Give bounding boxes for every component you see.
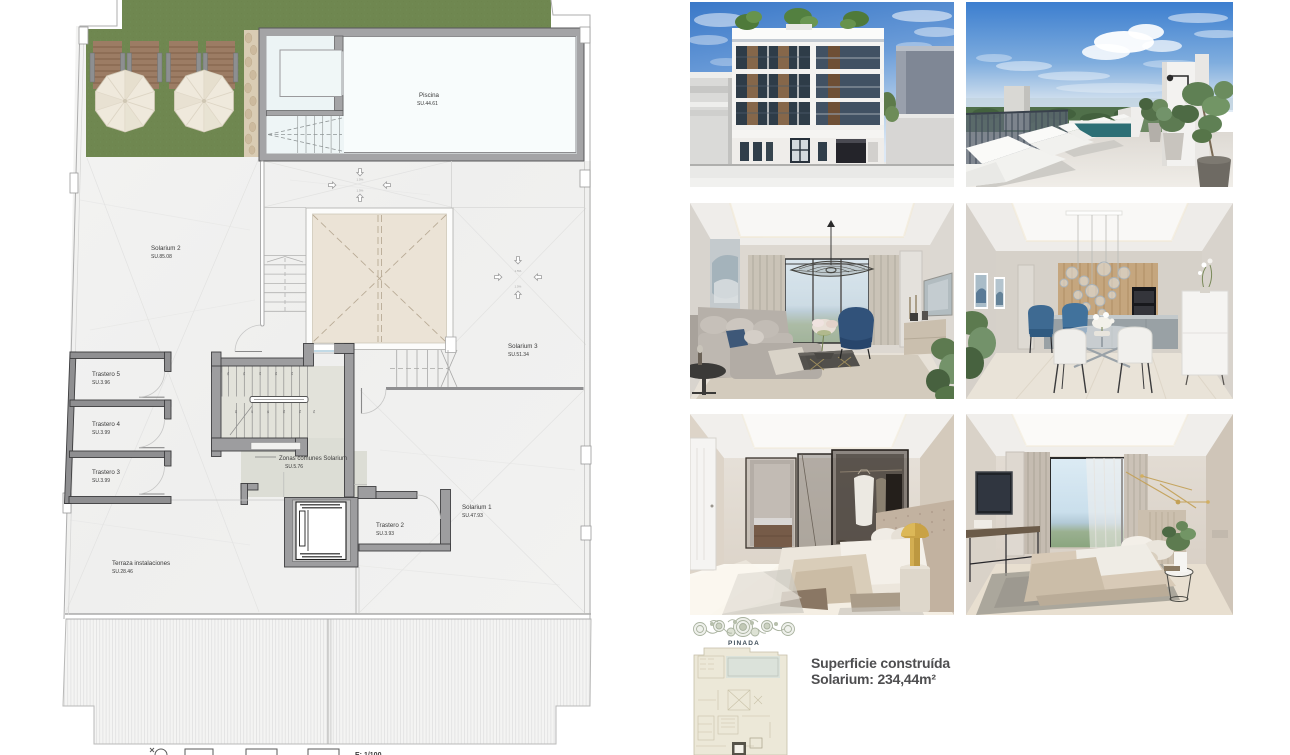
svg-text:58: 58 xyxy=(274,372,278,376)
svg-text:Solarium 2: Solarium 2 xyxy=(151,245,181,252)
svg-text:SU.3.93: SU.3.93 xyxy=(376,531,394,537)
svg-text:48: 48 xyxy=(266,410,270,414)
svg-text:1.5%: 1.5% xyxy=(515,285,522,289)
svg-text:Trastero 3: Trastero 3 xyxy=(92,469,121,476)
svg-text:SU.3.99: SU.3.99 xyxy=(92,430,110,436)
svg-text:SU.5.76: SU.5.76 xyxy=(285,464,303,470)
svg-text:Terraza instalaciones: Terraza instalaciones xyxy=(112,560,170,567)
svg-text:SU.3.96: SU.3.96 xyxy=(92,380,110,386)
svg-text:Trastero 5: Trastero 5 xyxy=(92,371,121,378)
svg-text:SU.28.46: SU.28.46 xyxy=(112,569,133,575)
svg-text:47: 47 xyxy=(250,410,254,414)
svg-text:SU.85.08: SU.85.08 xyxy=(151,254,172,260)
svg-text:Trastero 4: Trastero 4 xyxy=(92,421,121,428)
svg-text:Zonas comunes Solarium: Zonas comunes Solarium xyxy=(279,456,347,462)
svg-text:Solarium 1: Solarium 1 xyxy=(462,504,492,511)
svg-text:56: 56 xyxy=(242,372,246,376)
svg-text:52: 52 xyxy=(312,410,316,414)
svg-text:1.5%: 1.5% xyxy=(357,178,364,182)
svg-text:Solarium 3: Solarium 3 xyxy=(508,343,538,350)
svg-text:Piscina: Piscina xyxy=(419,92,440,99)
svg-text:SU.47.93: SU.47.93 xyxy=(462,513,483,519)
svg-text:1.5%: 1.5% xyxy=(357,189,364,193)
svg-text:Trastero 2: Trastero 2 xyxy=(376,522,405,529)
svg-text:62: 62 xyxy=(234,410,238,414)
svg-text:SU.44.61: SU.44.61 xyxy=(417,101,438,107)
svg-text:54: 54 xyxy=(290,372,294,376)
svg-text:50: 50 xyxy=(282,410,286,414)
svg-text:57: 57 xyxy=(258,372,262,376)
svg-text:SU.51.34: SU.51.34 xyxy=(508,352,529,358)
svg-text:1.5%: 1.5% xyxy=(515,269,522,273)
svg-text:51: 51 xyxy=(298,410,302,414)
svg-text:SU.3.99: SU.3.99 xyxy=(92,478,110,484)
svg-text:50: 50 xyxy=(226,372,230,376)
